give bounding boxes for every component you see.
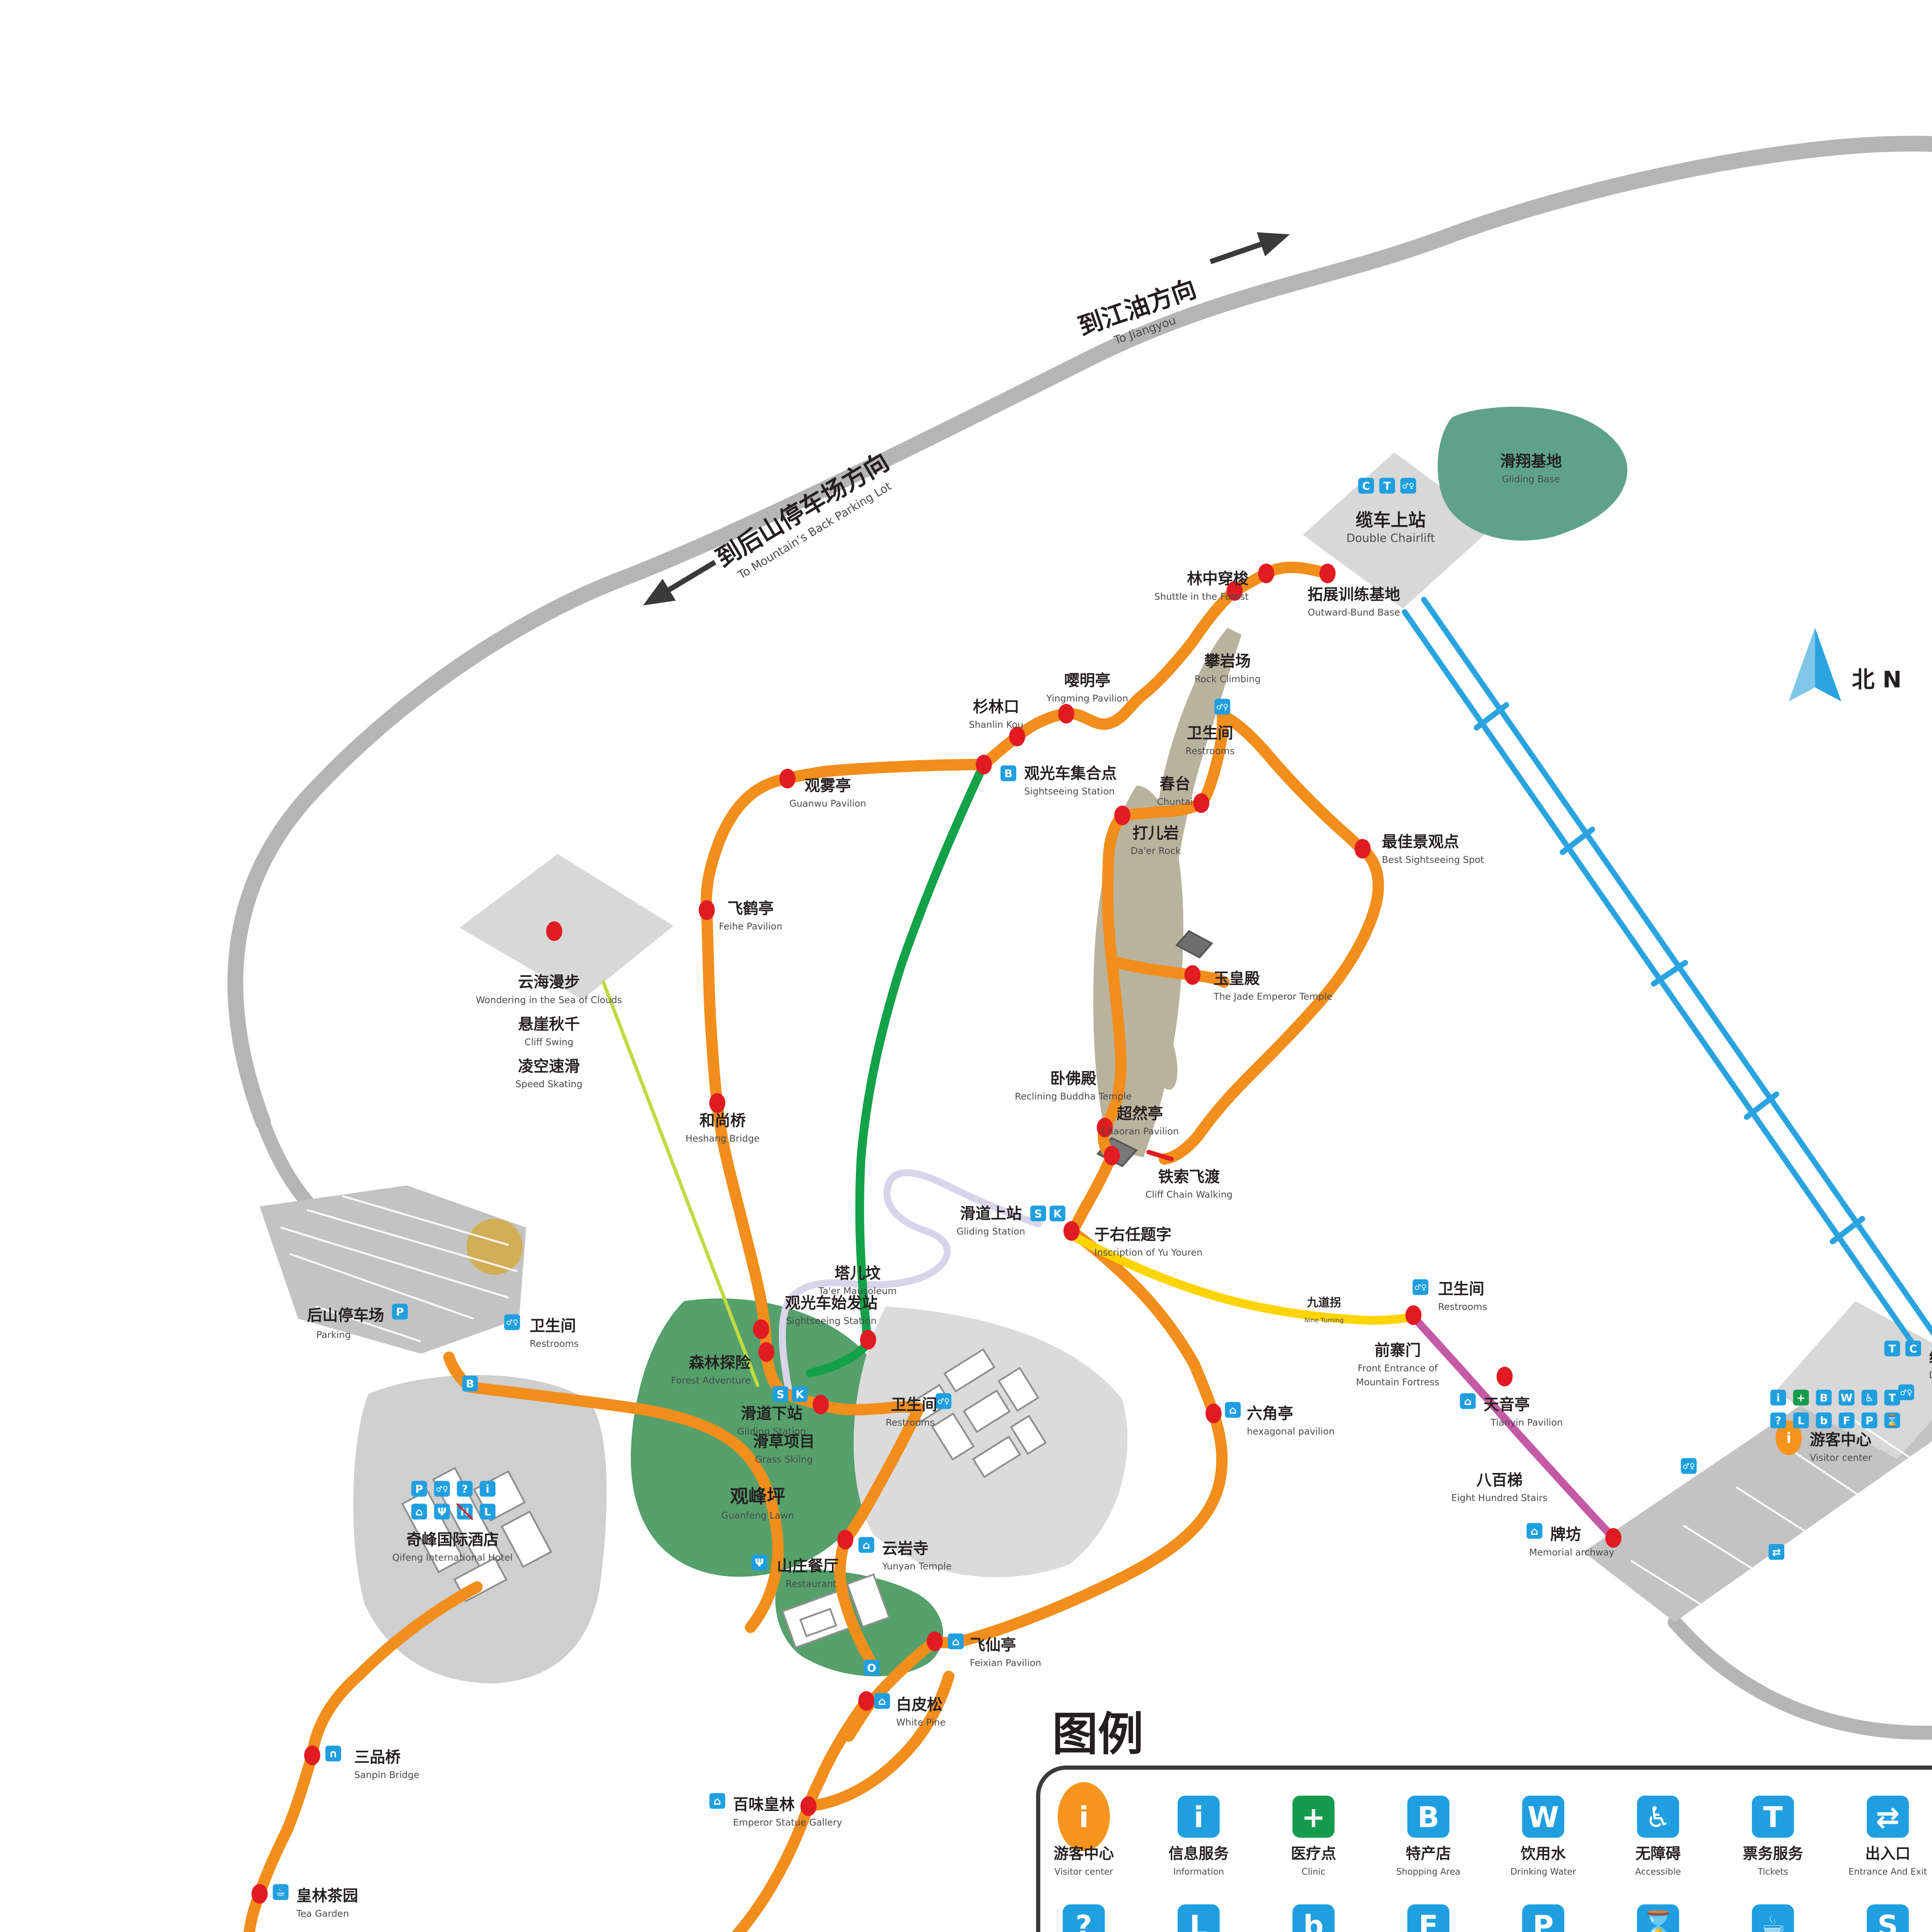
legend-en-clinic: Clinic — [1302, 1867, 1326, 1877]
legend-zh-entrance-exit: 出入口 — [1865, 1845, 1910, 1863]
sight-spot-dot — [800, 1796, 816, 1816]
qifeng-hotel-en: Qifeng International Hotel — [392, 1552, 513, 1563]
sight-spot-dot — [304, 1745, 320, 1765]
emperor-statue-gallery-en: Emperor Statue Gallery — [733, 1817, 842, 1828]
legend-en-shopping-area: Shopping Area — [1396, 1867, 1461, 1877]
sight-spot-dot — [927, 1631, 943, 1651]
daer-rock-en: Da'er Rock — [1131, 845, 1181, 856]
feixian-pavilion-zh: 飞仙亭 — [970, 1636, 1016, 1654]
best-sightseeing-spot-zh: 最佳景观点 — [1382, 833, 1459, 851]
legend-en-entrance-exit: Entrance And Exit — [1849, 1867, 1927, 1877]
restrooms-temple-en: Restrooms — [886, 1417, 935, 1428]
yu-youren-inscription-zh: 于右任题字 — [1094, 1226, 1172, 1244]
sight-spot-dot — [1206, 1403, 1222, 1423]
hexagonal-pavilion: ⌂六角亭hexagonal pavilion — [1206, 1402, 1335, 1437]
legend-zh-drinking-water: 饮用水 — [1520, 1845, 1566, 1863]
guanfeng-lawn-zh: 观峰坪 — [730, 1486, 785, 1507]
icon-glyph: C — [1909, 1342, 1917, 1355]
sight-spot-dot — [546, 921, 562, 941]
icon-glyph: K — [1053, 1207, 1062, 1220]
arrow-backlot-zh: 到后山停车场方向 — [711, 447, 894, 573]
villa-restaurant-zh: 山庄餐厅 — [777, 1557, 839, 1575]
front-fortress-gate-en: Mountain Fortress — [1356, 1377, 1439, 1388]
icon-glyph: L — [484, 1505, 491, 1518]
legend-zh-tickets: 票务服务 — [1743, 1845, 1803, 1863]
yunyan-temple-en: Yunyan Temple — [882, 1561, 952, 1572]
icon-glyph: ♂♀ — [1414, 1283, 1427, 1292]
nine-turns-label-en: Nine Turning — [1304, 1316, 1344, 1324]
visitor-center-zh: 游客中心 — [1810, 1431, 1872, 1449]
chaoran-pavilion-en: Chaoran Pavilion — [1101, 1126, 1179, 1137]
tickets-icon: T — [1763, 1801, 1783, 1834]
mound — [466, 1219, 522, 1275]
restrooms-stairs-top-zh: 卫生间 — [1438, 1280, 1485, 1298]
restrooms-temple-zh: 卫生间 — [891, 1396, 937, 1414]
legend: 图例 i游客中心Visitor centeri信息服务Information+医… — [1038, 1708, 1932, 1932]
sanpin-bridge: ∩三品桥Sanpin Bridge — [304, 1745, 419, 1780]
speed-skating: 凌空速滑Speed Skating — [515, 1058, 582, 1090]
front-fortress-gate: 前寨门Front Entrance ofMountain Fortress — [1356, 1342, 1439, 1388]
cable-route — [1405, 600, 1932, 1347]
sight-spot-dot — [699, 900, 715, 920]
icon-glyph: S — [777, 1388, 784, 1401]
sightseeing-station-start-zh: 观光车始发站 — [785, 1294, 878, 1312]
heshang-bridge-en: Heshang Bridge — [685, 1133, 760, 1144]
gliding-station-lower-zh: 滑道下站 — [741, 1405, 803, 1422]
icon-glyph: b — [1820, 1414, 1828, 1427]
icon-glyph: O — [867, 1662, 876, 1674]
legend-title: 图例 — [1052, 1708, 1143, 1761]
sight-spot-dot — [1193, 793, 1209, 813]
icon-glyph: i — [1776, 1391, 1780, 1404]
forest-adventure-en: Forest Adventure — [671, 1375, 751, 1386]
sight-spot-dot — [753, 1320, 769, 1339]
information-icon: i — [1194, 1801, 1203, 1834]
icon-glyph: W — [1841, 1391, 1853, 1404]
tianyin-pavilion-zh: 天音亭 — [1484, 1396, 1530, 1414]
sea-of-clouds-zh: 云海漫步 — [518, 973, 580, 991]
speed-skating-zh: 凌空速滑 — [518, 1058, 580, 1075]
sight-spot-dot — [1497, 1367, 1513, 1386]
icon-glyph: ♂♀ — [1216, 702, 1228, 711]
sea-of-clouds-en: Wondering in the Sea of Clouds — [476, 995, 622, 1005]
shopping-area-icon: B — [1417, 1801, 1439, 1834]
temple-grounds — [854, 1306, 1128, 1577]
front-fortress-gate-zh: 前寨门 — [1374, 1342, 1421, 1359]
villa-restaurant-en: Restaurant — [786, 1578, 837, 1589]
icon-glyph: S — [1034, 1207, 1042, 1220]
forest-adventure-zh: 森林探险 — [689, 1354, 751, 1372]
cliff-swing: 悬崖秋千Cliff Swing — [518, 1015, 580, 1048]
legend-en-drinking-water: Drinking Water — [1510, 1867, 1577, 1877]
restrooms-top-en: Restrooms — [1185, 745, 1235, 756]
chaoran-pavilion-zh: 超然亭 — [1117, 1105, 1163, 1122]
gliding-lower-icon: S — [1878, 1910, 1898, 1932]
grass-skiing-zh: 滑草项目 — [753, 1433, 815, 1451]
lift-bottom-station-zh: 缆车下站 — [1929, 1349, 1932, 1366]
icon-glyph: B — [1820, 1391, 1828, 1404]
icon-glyph: ? — [1775, 1414, 1781, 1427]
rock-climbing: 攀岩场Rock Climbing — [1194, 653, 1260, 685]
icon-glyph: ⌂ — [1531, 1525, 1538, 1537]
icon-glyph: i — [486, 1483, 490, 1495]
icon-glyph: ∩ — [329, 1747, 338, 1760]
jade-emperor-temple: 玉皇殿The Jade Emperor Temple — [1184, 965, 1332, 1002]
lost-and-found-icon: F — [1418, 1910, 1438, 1932]
legend-item-enquiry: ?咨询台Enquiry — [1061, 1905, 1106, 1932]
memorial-archway-zh: 牌坊 — [1550, 1526, 1581, 1544]
sight-spot-dot — [860, 1330, 876, 1350]
grass-skiing: 滑草项目Grass Skiing — [753, 1433, 815, 1465]
daer-rock-zh: 打儿岩 — [1133, 824, 1179, 842]
legend-en-information: Information — [1173, 1867, 1224, 1877]
best-sightseeing-spot-en: Best Sightseeing Spot — [1382, 854, 1484, 865]
legend-zh-visitor-center: 游客中心 — [1054, 1845, 1114, 1863]
gliding-station-upper-en: Gliding Station — [956, 1226, 1025, 1237]
clinic-icon: + — [1301, 1801, 1325, 1834]
shanlin-kou-en: Shanlin Kou — [969, 719, 1023, 730]
tianyin-pavilion-en: Tianyin Pavilion — [1490, 1417, 1563, 1428]
baby-care-icon: b — [1303, 1910, 1324, 1932]
visitor-center-icon: i — [1079, 1801, 1088, 1834]
sight-spot-dot — [709, 1093, 725, 1113]
legend-zh-clinic: 医疗点 — [1291, 1845, 1336, 1863]
sight-spot-dot — [1063, 1221, 1080, 1241]
tea-garden-zh: 皇林茶园 — [296, 1887, 358, 1905]
gliding-station-upper-zh: 滑道上站 — [960, 1205, 1022, 1223]
cliff-swing-en: Cliff Swing — [524, 1037, 573, 1048]
cliff-chain-walking: 铁索飞渡Cliff Chain Walking — [1145, 1168, 1232, 1200]
sight-spot-dot — [1184, 965, 1201, 985]
accessible-icon: ♿ — [1645, 1801, 1671, 1834]
icon-glyph: T — [1383, 480, 1391, 492]
reclining-buddha-en: Reclining Buddha Temple — [1015, 1091, 1132, 1102]
hexagonal-pavilion-zh: 六角亭 — [1247, 1405, 1293, 1422]
jade-emperor-temple-en: The Jade Emperor Temple — [1213, 991, 1333, 1002]
qifeng-hotel-zh: 奇峰国际酒店 — [406, 1531, 499, 1549]
icon-glyph: B — [466, 1378, 474, 1390]
taer-mausoleum-zh: 塔儿坟 — [834, 1264, 881, 1282]
legend-en-tickets: Tickets — [1757, 1867, 1788, 1877]
tea-garden-en: Tea Garden — [296, 1908, 349, 1919]
icon-glyph: ♂♀ — [436, 1485, 448, 1493]
icon-glyph: i — [1786, 1430, 1791, 1447]
heshang-bridge-zh: 和尚桥 — [699, 1112, 746, 1130]
icon-glyph: ☕ — [276, 1886, 286, 1899]
speed-skating-en: Speed Skating — [515, 1079, 582, 1090]
scenic-map-canvas: CT♂♀缆车上站Double Chairlift滑翔基地Gliding Base… — [0, 0, 1932, 1932]
eight-hundred-stairs: 八百梯Eight Hundred Stairs — [1451, 1471, 1548, 1503]
icon-glyph: ♂♀ — [1402, 481, 1414, 490]
legend-en-visitor-center: Visitor center — [1054, 1867, 1113, 1877]
waiting-area-icon: ⌛ — [1640, 1910, 1676, 1932]
back-parking-zh: 后山停车场 — [307, 1306, 384, 1324]
enquiry-icon: ? — [1075, 1910, 1092, 1932]
arrow-to-back-parking: 到后山停车场方向 To Mountain’s Back Parking Lot — [642, 447, 902, 628]
icon-glyph: ? — [462, 1483, 468, 1495]
white-pine-en: White Pine — [896, 1717, 946, 1728]
memorial-archway-en: Memorial archway — [1529, 1547, 1615, 1558]
eight-hundred-stairs-en: Eight Hundred Stairs — [1451, 1493, 1548, 1503]
drinking-water-icon: W — [1527, 1801, 1559, 1834]
front-fortress-gate-en: Front Entrance of — [1358, 1363, 1438, 1374]
outward-bund-base-en: Outward-Bund Base — [1308, 607, 1400, 618]
gliding-base-en: Gliding Base — [1502, 474, 1560, 485]
icon-glyph: P — [415, 1483, 423, 1495]
white-pine-zh: 白皮松 — [896, 1696, 942, 1714]
sight-spot-dot — [1405, 1305, 1422, 1325]
restrooms-back-parking-en: Restrooms — [530, 1338, 579, 1349]
icon-glyph: Ψ — [437, 1505, 447, 1518]
icon-glyph: ⌂ — [1464, 1395, 1472, 1408]
icon-glyph: T — [1888, 1391, 1896, 1404]
lift-top-station-zh: 缆车上站 — [1355, 510, 1426, 530]
icon-glyph: B — [1004, 767, 1012, 780]
photo-point: O — [864, 1660, 879, 1675]
cliff-swing-zh: 悬崖秋千 — [518, 1015, 580, 1033]
reclining-buddha-zh: 卧佛殿 — [1050, 1070, 1097, 1088]
rock-climbing-en: Rock Climbing — [1194, 673, 1260, 684]
visitor-center-en: Visitor center — [1810, 1452, 1872, 1463]
cliff-chain-walking-en: Cliff Chain Walking — [1145, 1189, 1232, 1200]
sanpin-bridge-zh: 三品桥 — [354, 1748, 401, 1766]
restrooms-stairs-top-en: Restrooms — [1438, 1301, 1487, 1312]
icon-glyph: ⌛ — [1886, 1414, 1899, 1427]
sight-spot-dot — [1058, 704, 1075, 724]
sanpin-bridge-en: Sanpin Bridge — [354, 1770, 419, 1781]
cliff-chain-walking-zh: 铁索飞渡 — [1158, 1168, 1220, 1186]
yingming-pavilion-zh: 嘤明亭 — [1064, 672, 1111, 689]
guanfeng-lawn: 观峰坪Guanfeng Lawn — [721, 1486, 794, 1521]
shuttle-in-forest-en: Shuttle in the Forest — [1154, 591, 1248, 602]
sight-spot-dot — [759, 1342, 775, 1362]
legend-zh-accessible: 无障碍 — [1636, 1845, 1681, 1863]
restrooms-back-parking: ♂♀卫生间Restrooms — [504, 1314, 579, 1349]
entrance-exit-icon: ⇄ — [1876, 1801, 1900, 1834]
tea-garden-icon: ☕ — [1760, 1910, 1786, 1932]
grass-skiing-en: Grass Skiing — [755, 1454, 813, 1465]
icon-glyph: C — [1362, 480, 1370, 492]
legend-item-parking: P停车场Parking — [1520, 1905, 1566, 1932]
icon-glyph: L — [1798, 1414, 1804, 1427]
sight-spot-dot — [976, 755, 992, 774]
back-parking-en: Parking — [316, 1330, 351, 1340]
yu-youren-inscription: 于右任题字Inscription of Yu Youren — [1094, 1226, 1202, 1258]
icon-glyph: F — [1843, 1414, 1850, 1427]
shuttle-in-forest-zh: 林中穿梭 — [1187, 570, 1249, 588]
sightseeing-station-mid-en: Sightseeing Station — [1024, 786, 1115, 797]
sight-spot-dot — [252, 1884, 268, 1904]
guanwu-pavilion-zh: 观雾亭 — [804, 777, 851, 795]
right-arrow-icon — [1207, 228, 1286, 270]
legend-zh-shopping-area: 特产店 — [1406, 1845, 1451, 1863]
compass-label: 北 N — [1852, 666, 1902, 693]
bus-stop-hotel: B — [462, 1376, 478, 1391]
nine-turns-label: 九道拐Nine Turning — [1304, 1296, 1344, 1324]
icon-glyph: Ψ — [755, 1556, 764, 1569]
legend-en-accessible: Accessible — [1635, 1867, 1681, 1877]
nine-turns-label-zh: 九道拐 — [1307, 1296, 1341, 1309]
restrooms-back-parking-zh: 卫生间 — [530, 1317, 576, 1335]
icon-glyph: ⌂ — [1229, 1404, 1237, 1417]
sight-spot-dot — [1320, 564, 1336, 583]
icon-glyph: + — [1796, 1391, 1805, 1404]
yunyan-temple-zh: 云岩寺 — [882, 1540, 929, 1558]
sightseeing-station-start-en: Sightseeing Station — [786, 1315, 876, 1326]
shanlin-kou: 杉林口Shanlin Kou — [969, 698, 1025, 747]
yingming-pavilion-en: Yingming Pavilion — [1046, 693, 1128, 704]
feihe-pavilion-zh: 飞鹤亭 — [728, 900, 774, 917]
sight-spot-dot — [1104, 1146, 1120, 1165]
shuttle-in-forest: 林中穿梭Shuttle in the Forest — [1154, 570, 1248, 602]
icon-glyph: ⌂ — [952, 1635, 960, 1648]
feihe-pavilion-en: Feihe Pavilion — [719, 921, 782, 932]
chuntai-zh: 春台 — [1160, 775, 1190, 793]
restrooms-top-zh: 卫生间 — [1187, 724, 1233, 742]
guanwu-pavilion-en: Guanwu Pavilion — [789, 798, 866, 809]
shanlin-kou-zh: 杉林口 — [973, 698, 1019, 716]
gliding-base-zh: 滑翔基地 — [1500, 452, 1562, 470]
compass: 北 N — [1789, 628, 1901, 702]
compass-needle-light — [1789, 628, 1815, 702]
plaza-restrooms: ♂♀ — [1681, 1458, 1697, 1474]
icon-glyph: ♂♀ — [1900, 1388, 1912, 1397]
legend-item-waiting-area: ⌛等候区Waiting Area — [1630, 1905, 1686, 1932]
sight-spot-dot — [1258, 564, 1274, 583]
legend-zh-information: 信息服务 — [1168, 1845, 1229, 1863]
yu-youren-inscription-en: Inscription of Yu Youren — [1094, 1247, 1202, 1258]
left-luggage-icon: L — [1189, 1910, 1207, 1932]
rock-climbing-zh: 攀岩场 — [1204, 653, 1251, 670]
outward-bund-base-zh: 拓展训练基地 — [1308, 586, 1400, 604]
sight-spot-dot — [1114, 806, 1131, 825]
icon-glyph: ♂♀ — [506, 1318, 518, 1327]
icon-glyph: ⌂ — [878, 1695, 886, 1708]
icon-glyph: P — [396, 1306, 404, 1318]
legend-item-baby-care: b哺乳处Baby Care — [1291, 1905, 1336, 1932]
plaza-entrance: ⇄ — [1769, 1544, 1784, 1560]
icon-glyph: ♿ — [1864, 1391, 1874, 1404]
icon-glyph: ⇄ — [1772, 1546, 1781, 1558]
sight-spot-dot — [858, 1691, 874, 1711]
sight-spot-dot — [1605, 1528, 1621, 1548]
icon-glyph: ⌂ — [713, 1795, 721, 1808]
hexagonal-pavilion-en: hexagonal pavilion — [1247, 1426, 1335, 1437]
sight-spot-dot — [837, 1530, 854, 1549]
map-svg: CT♂♀缆车上站Double Chairlift滑翔基地Gliding Base… — [0, 0, 1932, 1932]
icon-glyph: ♂♀ — [1683, 1462, 1695, 1471]
icon-glyph: ♂♀ — [937, 1397, 950, 1406]
icon-glyph: T — [1888, 1342, 1896, 1355]
sight-spot-dot — [1355, 839, 1371, 859]
compass-needle-dark — [1815, 628, 1841, 702]
icon-glyph: ⌂ — [415, 1505, 423, 1518]
gliding-base: 滑翔基地Gliding Base — [1500, 452, 1562, 485]
eight-hundred-stairs-zh: 八百梯 — [1476, 1471, 1522, 1489]
guanfeng-lawn-en: Guanfeng Lawn — [721, 1510, 794, 1521]
heshang-bridge: 和尚桥Heshang Bridge — [685, 1093, 760, 1144]
tea-garden: ☕皇林茶园Tea Garden — [252, 1884, 358, 1919]
tianyin-pavilion: ⌂天音亭Tianyin Pavilion — [1460, 1367, 1563, 1428]
sight-spot-dot — [813, 1395, 829, 1415]
sightseeing-station-mid-zh: 观光车集合点 — [1024, 765, 1117, 782]
sightseeing-station-mid: B观光车集合点Sightseeing Station — [976, 755, 1117, 797]
lift-top-station-en: Double Chairlift — [1346, 531, 1435, 544]
feixian-pavilion-en: Feixian Pavilion — [970, 1657, 1041, 1668]
lift-bottom-station-en: Double Chairlift — [1929, 1370, 1932, 1381]
restrooms-stairs-top: ♂♀卫生间Restrooms — [1405, 1279, 1487, 1325]
gliding-station-upper: SK滑道上站Gliding Station — [956, 1205, 1079, 1241]
icon-glyph: ⌂ — [862, 1539, 870, 1551]
icon-glyph: P — [1866, 1414, 1873, 1427]
sight-spot-dot — [779, 769, 796, 789]
icon-glyph: K — [796, 1388, 804, 1401]
chuntai-en: Chuntai — [1157, 796, 1193, 807]
emperor-statue-gallery-zh: 百味皇林 — [733, 1796, 795, 1813]
parking-icon: P — [1533, 1910, 1554, 1932]
jade-emperor-temple-zh: 玉皇殿 — [1214, 970, 1260, 988]
